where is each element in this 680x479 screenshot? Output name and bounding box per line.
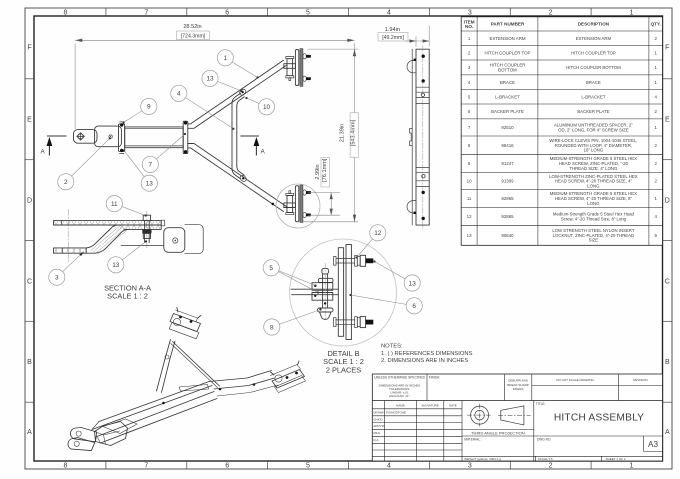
svg-text:PART NUMBER: PART NUMBER: [491, 22, 525, 27]
svg-text:QTY.: QTY.: [651, 22, 661, 27]
svg-text:6: 6: [225, 462, 229, 469]
svg-text:3: 3: [55, 275, 59, 282]
svg-text:THREAD SIZE, 4” LONG: THREAD SIZE, 4” LONG: [569, 166, 618, 171]
svg-text:DWG NO.: DWG NO.: [537, 438, 551, 442]
svg-text:TITLE:: TITLE:: [536, 402, 546, 406]
svg-text:F: F: [665, 44, 669, 51]
svg-text:SHEET 1 OF 2: SHEET 1 OF 2: [606, 457, 626, 461]
svg-text:CHK'D: CHK'D: [373, 418, 383, 422]
svg-text:1. ( ) REFERENCES DIMENSIONS: 1. ( ) REFERENCES DIMENSIONS: [381, 351, 473, 357]
svg-text:12: 12: [467, 214, 472, 219]
svg-text:13: 13: [467, 233, 472, 238]
svg-text:4: 4: [387, 9, 391, 16]
svg-text:2. DIMENSIONS ARE IN INCHES: 2. DIMENSIONS ARE IN INCHES: [381, 358, 468, 364]
svg-text:APPV'D: APPV'D: [373, 424, 385, 428]
svg-text:A: A: [27, 429, 32, 436]
svg-text:2.99in: 2.99in: [315, 164, 321, 179]
svg-text:2: 2: [549, 462, 553, 469]
svg-text:3: 3: [468, 9, 472, 16]
svg-text:DESCRIPTION: DESCRIPTION: [578, 22, 610, 27]
svg-text:FINISH:: FINISH:: [429, 375, 440, 379]
svg-text:E: E: [665, 116, 670, 123]
svg-text:LONG: LONG: [587, 201, 600, 206]
svg-text:[76.1mm]: [76.1mm]: [322, 158, 328, 182]
svg-text:1.94in: 1.94in: [385, 27, 400, 33]
svg-text:A: A: [261, 149, 266, 156]
svg-text:2: 2: [549, 9, 553, 16]
svg-text:SCALE 1 : 2: SCALE 1 : 2: [107, 291, 148, 300]
svg-text:DO NOT SCALE DRAWING: DO NOT SCALE DRAWING: [556, 378, 594, 382]
svg-text:1: 1: [630, 9, 634, 16]
svg-text:4: 4: [177, 91, 181, 98]
svg-text:EXTENSION ARM: EXTENSION ARM: [576, 36, 612, 41]
svg-text:THIRD ANGLE PROJECTION: THIRD ANGLE PROJECTION: [471, 431, 525, 436]
svg-text:13: 13: [112, 262, 120, 269]
svg-text:D: D: [665, 197, 670, 204]
svg-text:L-BRACKET: L-BRACKET: [495, 94, 520, 99]
svg-text:9: 9: [147, 104, 151, 111]
svg-text:NO.: NO.: [465, 24, 473, 29]
svg-text:2: 2: [64, 179, 68, 186]
svg-text:7: 7: [144, 9, 148, 16]
svg-text:92865: 92865: [501, 214, 514, 219]
svg-text:NAME: NAME: [396, 404, 405, 408]
svg-text:6: 6: [412, 303, 416, 310]
svg-text:MFG: MFG: [373, 431, 380, 435]
svg-text:12: 12: [374, 230, 382, 237]
svg-text:UNLESS OTHERWISE SPECIFIED:: UNLESS OTHERWISE SPECIFIED:: [374, 375, 426, 379]
svg-text:10: 10: [263, 104, 271, 111]
svg-text:92510: 92510: [501, 125, 514, 130]
svg-text:EDGES: EDGES: [513, 387, 524, 391]
svg-text:5: 5: [269, 265, 273, 272]
svg-text:BACKER PLATE: BACKER PLATE: [577, 109, 609, 114]
svg-text:8: 8: [63, 9, 67, 16]
svg-text:MATERIAL:: MATERIAL:: [464, 438, 481, 442]
svg-text:Screw, 4”-20 Thread Size, 8”: Screw, 4”-20 Thread Size, 8” Long: [561, 216, 627, 221]
svg-text:13: 13: [206, 76, 214, 83]
svg-text:A: A: [41, 149, 46, 156]
svg-text:BACKER PLATE: BACKER PLATE: [491, 109, 524, 114]
svg-text:91247: 91247: [501, 161, 514, 166]
svg-text:[49.2mm]: [49.2mm]: [382, 35, 404, 41]
svg-text:[724.3mm]: [724.3mm]: [181, 34, 206, 40]
svg-text:7: 7: [144, 462, 148, 469]
svg-text:DRAWN: DRAWN: [373, 411, 384, 415]
svg-text:Q.A: Q.A: [373, 438, 378, 442]
svg-text:5: 5: [306, 9, 310, 16]
svg-text:BOTTOM: BOTTOM: [498, 68, 517, 73]
svg-text:6: 6: [225, 9, 229, 16]
svg-text:HITCH COUPLER BOTTOM: HITCH COUPLER BOTTOM: [566, 65, 621, 70]
svg-text:P.KINGSTONE: P.KINGSTONE: [386, 411, 406, 415]
svg-text:4: 4: [387, 462, 391, 469]
svg-text:BRACE: BRACE: [586, 80, 601, 85]
svg-text:91309: 91309: [501, 179, 514, 184]
svg-text:11: 11: [467, 196, 472, 201]
svg-text:WEIGHT (grams): 1053.2 g: WEIGHT (grams): 1053.2 g: [464, 457, 501, 461]
svg-text:OD, 2” LONG, FOR 4” SCREW SI: OD, 2” LONG, FOR 4” SCREW SIZE: [558, 127, 629, 132]
svg-text:8: 8: [63, 462, 67, 469]
svg-text:7: 7: [149, 162, 153, 169]
svg-text:DATE: DATE: [449, 404, 457, 408]
svg-text:B: B: [27, 359, 32, 366]
svg-text:[543.4mm]: [543.4mm]: [350, 119, 356, 146]
svg-text:HITCH ASSEMBLY: HITCH ASSEMBLY: [554, 412, 644, 423]
svg-text:REVISION: REVISION: [633, 378, 647, 382]
svg-text:13: 13: [146, 181, 154, 188]
svg-text:5: 5: [306, 462, 310, 469]
svg-text:28.52in: 28.52in: [183, 24, 201, 30]
svg-text:2 PLACES: 2 PLACES: [326, 365, 361, 374]
svg-text:HITCH COUPLER TOP: HITCH COUPLER TOP: [571, 50, 616, 55]
svg-text:1: 1: [224, 55, 228, 62]
svg-text:L-BRACKET: L-BRACKET: [581, 94, 605, 99]
svg-text:A: A: [665, 429, 670, 436]
svg-text:E: E: [27, 116, 32, 123]
svg-text:BRACE: BRACE: [500, 80, 515, 85]
svg-text:A3: A3: [648, 440, 658, 449]
svg-text:NOTES:: NOTES:: [381, 344, 403, 350]
svg-text:21.39in: 21.39in: [339, 124, 345, 142]
svg-text:C: C: [27, 278, 32, 285]
svg-text:EXTENSION ARM: EXTENSION ARM: [489, 36, 525, 41]
svg-text:SIGNATURE: SIGNATURE: [421, 404, 438, 408]
svg-text:10: 10: [467, 179, 472, 184]
svg-text:98416: 98416: [501, 143, 514, 148]
svg-text:16” LONG: 16” LONG: [584, 148, 604, 153]
svg-text:90640: 90640: [501, 233, 514, 238]
svg-text:SCALE:1:5: SCALE:1:5: [538, 457, 553, 461]
svg-text:C: C: [665, 278, 670, 285]
svg-text:1: 1: [630, 462, 634, 469]
svg-text:HITCH COUPLER TOP: HITCH COUPLER TOP: [485, 50, 531, 55]
svg-text:B: B: [665, 359, 670, 366]
svg-text:11: 11: [111, 201, 118, 208]
svg-text:D: D: [27, 197, 32, 204]
svg-text:13: 13: [409, 280, 417, 287]
svg-text:F: F: [27, 44, 31, 51]
svg-text:SIZE: SIZE: [589, 238, 599, 243]
svg-text:3: 3: [468, 462, 472, 469]
svg-text:8: 8: [270, 324, 274, 331]
svg-text:LONG: LONG: [587, 183, 600, 188]
svg-text:92865: 92865: [501, 196, 514, 201]
svg-text:ANGULAR: ±1°: ANGULAR: ±1°: [389, 394, 410, 398]
